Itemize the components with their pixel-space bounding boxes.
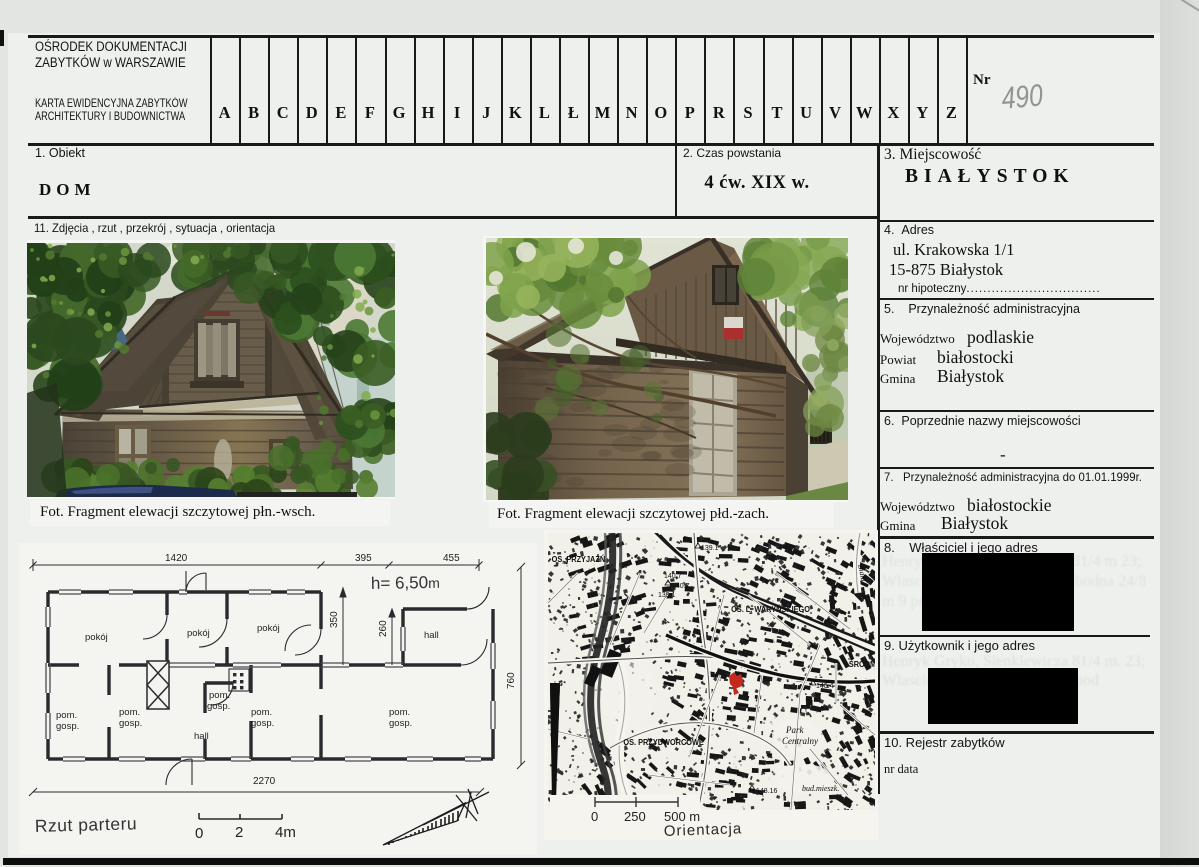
svg-text:hall: hall	[194, 731, 209, 742]
svg-text:139.1: 139.1	[701, 545, 719, 552]
svg-text:Park: Park	[785, 725, 805, 735]
svg-text:pom.: pom.	[389, 707, 410, 718]
svg-text:4m: 4m	[275, 824, 296, 841]
svg-text:ŚRÓDM: ŚRÓDM	[849, 660, 875, 669]
svg-text:760: 760	[506, 672, 517, 689]
svg-text:gosp.: gosp.	[389, 718, 412, 729]
svg-text:hall: hall	[424, 630, 439, 641]
svg-text:0: 0	[195, 825, 203, 842]
svg-text:pom.: pom.	[119, 707, 140, 718]
svg-text:139.1: 139.1	[658, 592, 676, 599]
svg-text:gosp.: gosp.	[56, 721, 79, 732]
svg-text:pokój: pokój	[85, 632, 108, 643]
svg-text:pom.: pom.	[56, 710, 77, 721]
svg-text:Rzut parteru: Rzut parteru	[35, 813, 138, 836]
svg-text:pom.: pom.	[209, 690, 230, 701]
svg-text:2270: 2270	[253, 776, 276, 787]
svg-text:395: 395	[355, 553, 372, 564]
svg-text:pokój: pokój	[187, 628, 210, 639]
svg-text:Orientacja: Orientacja	[664, 820, 743, 840]
svg-text:2: 2	[235, 824, 243, 841]
svg-text:260: 260	[378, 620, 389, 637]
svg-text:1420: 1420	[165, 553, 188, 564]
svg-text:bud.mieszk.: bud.mieszk.	[802, 784, 839, 793]
svg-text:gosp.: gosp.	[251, 718, 274, 729]
svg-text:0: 0	[591, 809, 598, 824]
svg-text:pokój: pokój	[257, 623, 280, 634]
svg-text:Centralny: Centralny	[782, 736, 818, 746]
svg-text:140.4: 140.4	[816, 683, 834, 690]
svg-text:OS. L. WARYŃSKIEGO: OS. L. WARYŃSKIEGO	[731, 605, 810, 614]
svg-text:h= 6,50m: h= 6,50m	[371, 573, 440, 593]
svg-text:OS. PRZYJAŹŃ: OS. PRZYJAŹŃ	[552, 555, 606, 564]
svg-text:pom.: pom.	[251, 707, 272, 718]
svg-text:140.7: 140.7	[672, 583, 690, 590]
svg-text:gosp.: gosp.	[207, 701, 230, 712]
svg-text:455: 455	[443, 553, 460, 564]
svg-text:350: 350	[329, 611, 340, 628]
svg-text:140.7: 140.7	[664, 573, 682, 580]
svg-text:148.16: 148.16	[756, 788, 778, 795]
svg-text:OS. PRZYDWORCOWE: OS. PRZYDWORCOWE	[623, 738, 703, 747]
svg-text:250: 250	[624, 809, 646, 824]
svg-text:gosp.: gosp.	[119, 718, 142, 729]
